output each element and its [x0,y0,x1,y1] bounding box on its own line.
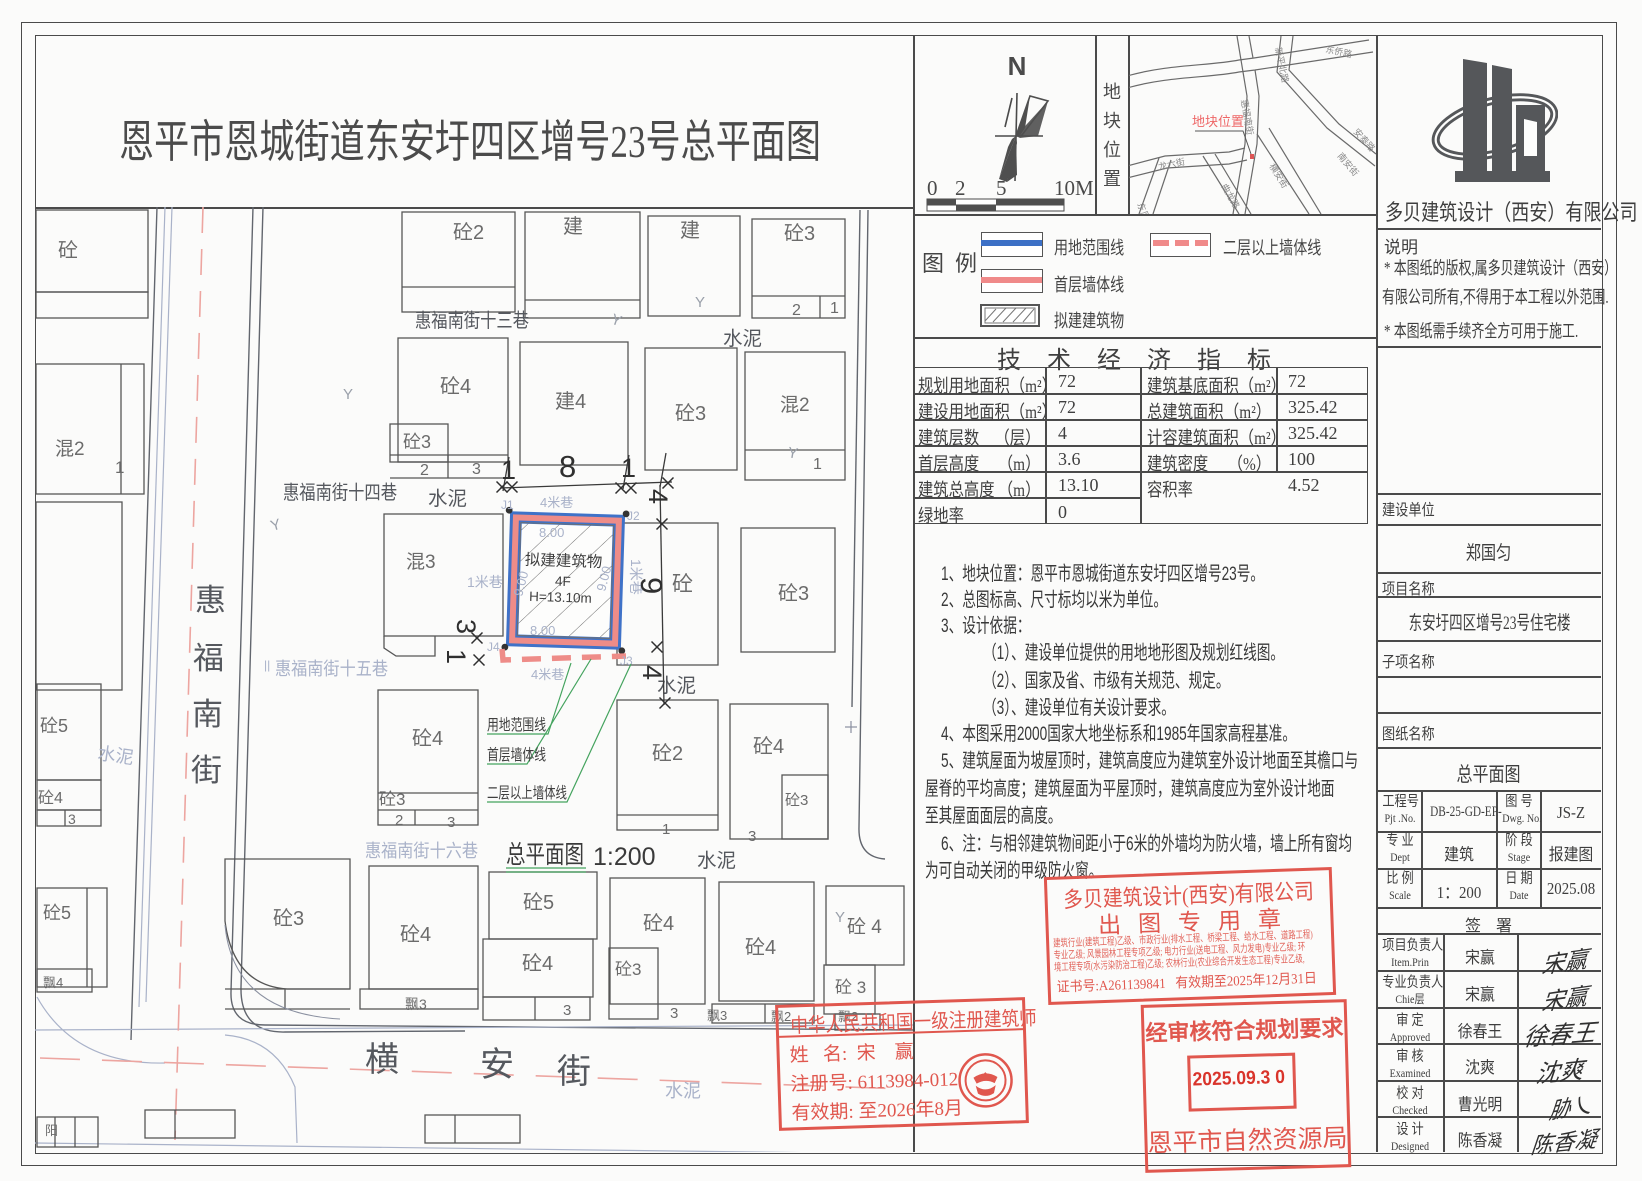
svg-text:J2: J2 [627,509,640,523]
svg-text:首层墙体线: 首层墙体线 [487,746,546,764]
svg-text:2: 2 [420,462,429,479]
svg-text:惠福南街十四巷: 惠福南街十四巷 [283,482,397,504]
svg-text:Y: Y [695,294,705,311]
svg-text:砼4: 砼4 [643,912,674,935]
svg-text:砼3: 砼3 [403,432,431,452]
svg-text:1: 1 [662,821,670,838]
svg-text:J4: J4 [487,640,500,654]
svg-text:龙六街: 龙六街 [1157,156,1186,172]
svg-text:4: 4 [643,489,673,504]
svg-text:3: 3 [68,811,76,827]
svg-text:砼3: 砼3 [675,402,706,425]
svg-text:水泥: 水泥 [723,328,762,350]
svg-text:砼4: 砼4 [745,936,776,959]
svg-text:砼4: 砼4 [38,789,63,807]
svg-text:飘4: 飘4 [43,975,63,990]
svg-text:水泥: 水泥 [665,1081,701,1101]
svg-text:J1: J1 [501,498,514,512]
svg-text:混2: 混2 [780,394,810,416]
svg-text:地块位置: 地块位置 [1192,114,1244,129]
svg-text:1: 1 [621,453,636,483]
svg-text:1: 1 [441,649,471,664]
svg-text:1: 1 [501,455,516,485]
svg-text:水泥: 水泥 [428,488,467,510]
svg-text:砼: 砼 [58,239,78,262]
svg-text:福: 福 [193,641,224,676]
svg-text:砼 4: 砼 4 [847,916,882,938]
svg-text:3: 3 [748,828,756,845]
svg-text:飘3: 飘3 [707,1008,727,1023]
svg-text:砼3: 砼3 [615,960,641,979]
svg-text:砼3: 砼3 [778,582,809,605]
svg-text:3: 3 [451,619,481,634]
svg-text:2: 2 [792,302,801,319]
svg-text:1: 1 [115,458,124,477]
svg-text:8.00: 8.00 [530,623,555,638]
svg-text:南: 南 [192,697,223,732]
svg-text:安泰路: 安泰路 [1352,126,1376,153]
svg-text:砼3: 砼3 [785,792,808,809]
svg-text:10M: 10M [1054,176,1094,200]
svg-text:8: 8 [559,449,576,484]
svg-text:砼5: 砼5 [523,891,554,914]
svg-text:总平面图: 总平面图 [506,841,584,869]
svg-text:惠福南街十三巷: 惠福南街十三巷 [415,310,529,332]
svg-text:1: 1 [830,300,839,317]
svg-text:混3: 混3 [406,551,436,573]
svg-text:水泥: 水泥 [96,743,134,768]
svg-text:南安街: 南安街 [1335,150,1361,178]
svg-text:||: || [264,658,270,672]
svg-text:砼3: 砼3 [273,907,304,930]
svg-text:砼3: 砼3 [379,790,405,809]
svg-text:Y: Y [786,444,799,462]
svg-text:混2: 混2 [55,438,85,460]
svg-text:8.00: 8.00 [539,525,564,540]
svg-text:二层以上墙体线: 二层以上墙体线 [487,784,567,802]
svg-text:建: 建 [680,219,700,242]
svg-text:水泥: 水泥 [697,850,736,872]
svg-text:4米巷: 4米巷 [531,667,564,682]
svg-text:惠: 惠 [195,583,226,618]
svg-text:Y: Y [343,386,353,403]
svg-text:5: 5 [996,176,1007,200]
svg-text:安: 安 [480,1046,514,1084]
svg-text:砼4: 砼4 [522,952,553,975]
svg-text:9: 9 [634,577,669,594]
svg-text:横: 横 [365,1041,399,1079]
svg-text:砼4: 砼4 [412,727,443,750]
svg-text:砼2: 砼2 [652,742,683,765]
svg-text:Y: Y [835,909,845,926]
svg-text:横安街: 横安街 [1267,161,1291,190]
svg-text:曲龙路: 曲龙路 [1219,182,1242,211]
svg-text:Y: Y [609,311,624,330]
svg-text:1:200: 1:200 [593,843,656,871]
svg-text:4F: 4F [555,574,571,589]
svg-text:街: 街 [557,1053,591,1091]
svg-text:砼2: 砼2 [453,221,484,244]
svg-text:3: 3 [447,814,455,831]
svg-text:砼4: 砼4 [753,735,784,758]
svg-text:砼5: 砼5 [40,716,68,736]
svg-text:J3: J3 [620,654,633,668]
svg-text:建4: 建4 [555,390,586,413]
svg-text:2: 2 [955,176,966,200]
svg-text:1米巷: 1米巷 [467,574,503,590]
svg-text:H=13.10m: H=13.10m [529,589,592,606]
svg-text:2: 2 [395,812,403,829]
svg-text:1: 1 [813,456,822,473]
svg-text:3: 3 [563,1002,571,1019]
svg-text:3: 3 [670,1005,678,1022]
svg-text:惠福南街十六巷: 惠福南街十六巷 [365,841,478,861]
svg-text:飘3: 飘3 [405,996,427,1012]
svg-text:4米巷: 4米巷 [540,495,573,510]
svg-text:砼4: 砼4 [400,923,431,946]
svg-text:砼4: 砼4 [440,375,471,398]
svg-text:建: 建 [563,215,583,238]
svg-text:3: 3 [472,461,481,478]
svg-text:4: 4 [637,665,667,680]
svg-text:砼3: 砼3 [784,222,815,245]
svg-text:N: N [1008,51,1027,81]
svg-text:拟建建筑物: 拟建建筑物 [525,551,603,571]
svg-text:砼: 砼 [672,573,693,596]
svg-text:惠福南街十五巷: 惠福南街十五巷 [275,659,388,679]
svg-text:砼5: 砼5 [43,903,71,923]
svg-text:砼 3: 砼 3 [835,978,866,997]
svg-text:Y: Y [269,516,283,535]
svg-text:街: 街 [191,753,222,788]
svg-text:阳: 阳 [45,1123,58,1138]
svg-text:用地范围线: 用地范围线 [487,716,546,734]
svg-text:0: 0 [927,176,938,200]
